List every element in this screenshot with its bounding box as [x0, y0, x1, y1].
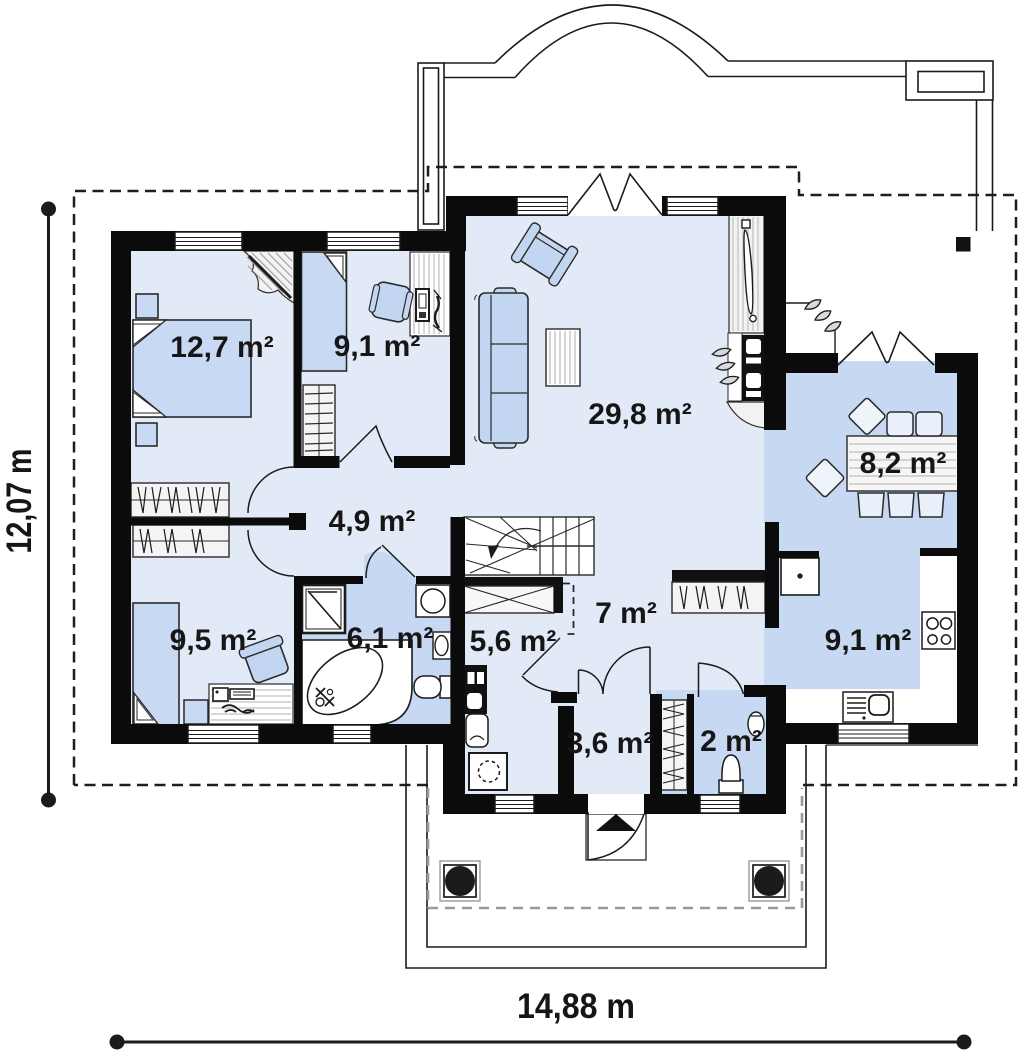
svg-text:12,7 m²: 12,7 m²	[170, 331, 273, 364]
svg-text:29,8 m²: 29,8 m²	[588, 398, 691, 431]
svg-text:4,9 m²: 4,9 m²	[329, 505, 416, 538]
svg-text:12,07 m: 12,07 m	[0, 449, 39, 554]
svg-text:2 m²: 2 m²	[700, 725, 762, 758]
svg-text:9,1 m²: 9,1 m²	[334, 330, 421, 363]
svg-text:9,5 m²: 9,5 m²	[170, 624, 257, 657]
svg-text:7 m²: 7 m²	[595, 597, 657, 630]
svg-text:5,6 m²: 5,6 m²	[470, 625, 557, 658]
svg-text:9,1 m²: 9,1 m²	[825, 624, 912, 657]
svg-text:6,1 m²: 6,1 m²	[347, 622, 434, 655]
svg-text:14,88 m: 14,88 m	[517, 987, 635, 1026]
svg-text:8,2 m²: 8,2 m²	[860, 447, 947, 480]
svg-text:3,6 m²: 3,6 m²	[567, 727, 654, 760]
